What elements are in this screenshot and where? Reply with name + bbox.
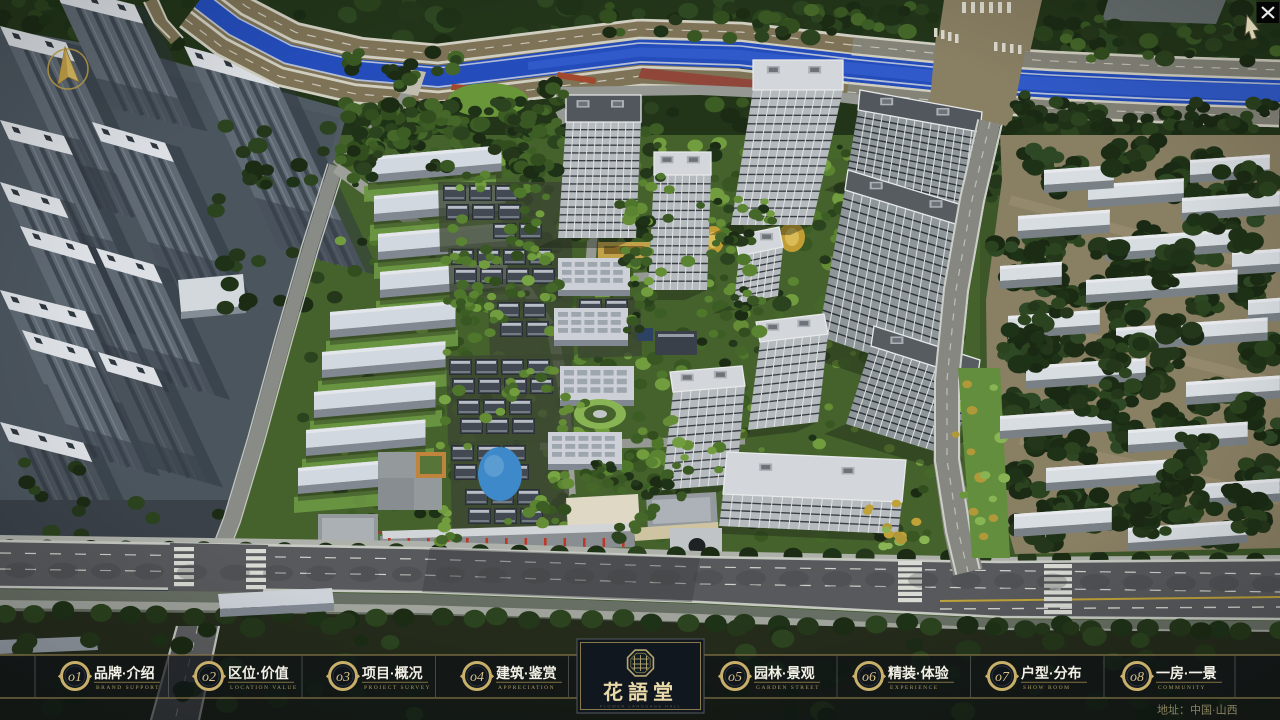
svg-text:COMMUNITY: COMMUNITY: [1158, 685, 1206, 691]
svg-text:一房·一景: 一房·一景: [1156, 665, 1217, 681]
svg-text:LOCATION VALUE: LOCATION VALUE: [230, 685, 298, 691]
svg-text:o7: o7: [995, 670, 1010, 685]
svg-text:户型·分布: 户型·分布: [1021, 665, 1082, 681]
svg-text:o5: o5: [728, 670, 742, 685]
svg-text:花語堂: 花語堂: [603, 680, 678, 704]
svg-text:o3: o3: [336, 670, 350, 685]
svg-text:园林·景观: 园林·景观: [754, 665, 815, 681]
svg-text:EXPERIENCE: EXPERIENCE: [890, 685, 939, 691]
svg-text:APPRECIATION: APPRECIATION: [498, 685, 555, 691]
svg-text:精装·体验: 精装·体验: [888, 665, 950, 681]
svg-text:BRAND SUPPORT: BRAND SUPPORT: [96, 685, 160, 691]
svg-text:地址：中国·山西: 地址：中国·山西: [1157, 703, 1238, 717]
svg-text:o4: o4: [470, 670, 484, 685]
svg-text:SHOW ROOM: SHOW ROOM: [1023, 685, 1070, 691]
svg-text:o2: o2: [202, 670, 216, 685]
svg-text:品牌·介绍: 品牌·介绍: [94, 665, 155, 681]
svg-text:PROJECT SURVEY: PROJECT SURVEY: [364, 685, 431, 691]
svg-text:项目·概况: 项目·概况: [362, 665, 423, 681]
svg-text:o6: o6: [862, 670, 876, 685]
svg-text:区位·价值: 区位·价值: [228, 665, 289, 681]
svg-text:FLOWER LANGUAGE HALL: FLOWER LANGUAGE HALL: [600, 704, 682, 709]
svg-text:GARDEN STREET: GARDEN STREET: [756, 685, 820, 691]
svg-text:建筑·鉴赏: 建筑·鉴赏: [496, 665, 557, 681]
svg-text:o8: o8: [1130, 670, 1144, 685]
svg-text:o1: o1: [68, 670, 82, 685]
